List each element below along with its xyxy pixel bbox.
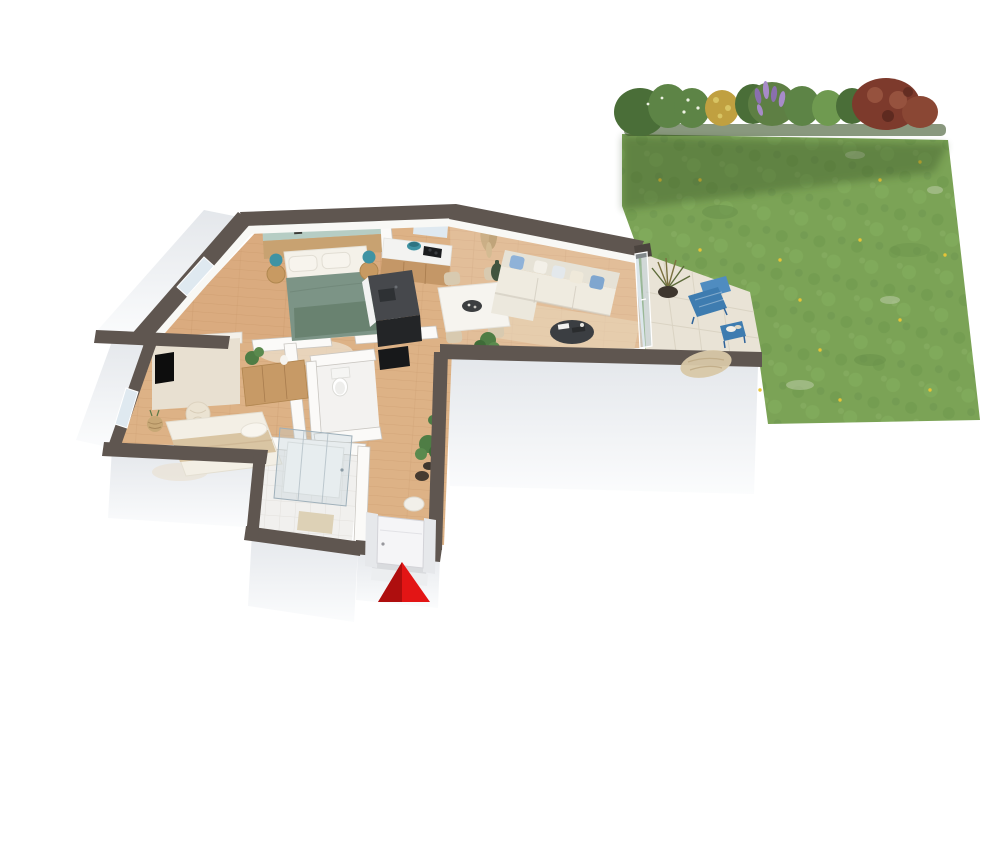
shower <box>274 428 352 506</box>
floor-plan-stage <box>0 0 1000 857</box>
shower-handle <box>340 468 343 471</box>
floor-plan-rendering <box>0 0 1000 857</box>
south-wall-face-living <box>446 358 758 494</box>
bed-pillow <box>322 252 351 269</box>
teal-lamp <box>270 254 283 267</box>
toilet-tank <box>331 367 350 379</box>
island-sink <box>378 288 396 302</box>
coffee-table <box>550 320 594 344</box>
bed-pillow <box>289 255 318 272</box>
table-bowl <box>462 300 482 312</box>
tv-screen <box>155 352 174 384</box>
flower-hedge <box>614 78 946 136</box>
black-appliance <box>378 346 410 370</box>
front-door <box>377 516 424 568</box>
hedge-bush-red <box>852 78 938 130</box>
white-stool <box>404 497 424 511</box>
shower-glass <box>274 428 352 506</box>
bath-mat <box>297 511 334 534</box>
hedge-bush-yellow <box>705 90 739 126</box>
door-handle <box>381 542 384 545</box>
white-vase <box>280 355 288 365</box>
hedge-bush-white-flowers <box>674 88 710 128</box>
teal-lamp <box>363 251 376 264</box>
